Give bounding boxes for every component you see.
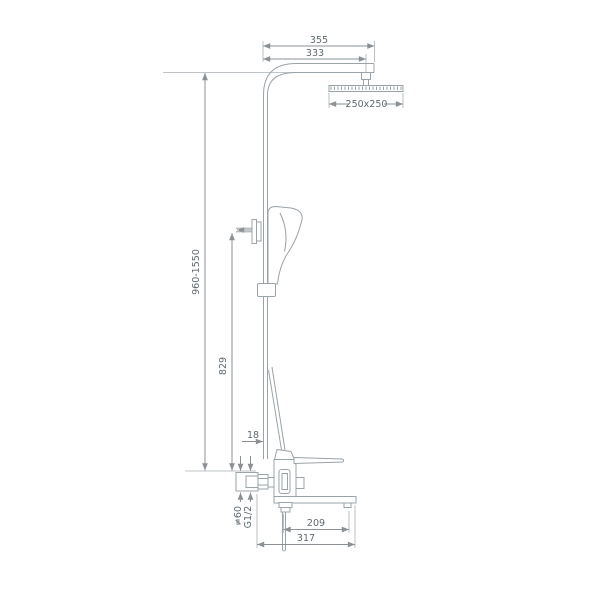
shower-column-technical-drawing: 355 333 250x250 960-1550 829 18 209 317 … bbox=[0, 0, 600, 600]
nozzle-ticks bbox=[331, 87, 401, 91]
dim-label-960-1550: 960-1550 bbox=[191, 249, 202, 295]
diverter-knob bbox=[296, 478, 304, 489]
dim-label-355: 355 bbox=[310, 35, 328, 46]
dim-label-333: 333 bbox=[306, 48, 324, 59]
dim-829: 829 bbox=[218, 233, 232, 471]
dim-label-209: 209 bbox=[307, 518, 325, 529]
slider-block bbox=[258, 284, 276, 297]
dim-thread: G1/2 bbox=[243, 456, 254, 528]
wall-mount-connection bbox=[236, 473, 274, 492]
hand-shower-holder bbox=[236, 220, 261, 244]
hand-shower bbox=[258, 207, 303, 297]
dim-label-18: 18 bbox=[247, 430, 259, 441]
dim-355: 355 bbox=[263, 35, 375, 46]
dim-label-250x250: 250x250 bbox=[346, 99, 388, 110]
dim-960-1550: 960-1550 bbox=[191, 73, 205, 471]
dim-label-829: 829 bbox=[218, 357, 229, 375]
dim-18: 18 bbox=[242, 430, 263, 442]
overhead-shower-head bbox=[329, 73, 403, 92]
dim-250x250: 250x250 bbox=[329, 99, 403, 110]
dim-label-317: 317 bbox=[297, 533, 315, 544]
spout-aerator bbox=[344, 503, 351, 508]
dim-209: 209 bbox=[284, 518, 350, 530]
dim-333: 333 bbox=[263, 48, 366, 59]
hose-nut bbox=[279, 503, 292, 508]
technical-drawing-canvas: 355 333 250x250 960-1550 829 18 209 317 … bbox=[0, 0, 600, 600]
dim-label-g12: G1/2 bbox=[243, 506, 254, 529]
dim-317: 317 bbox=[257, 533, 355, 545]
hand-shower-hose bbox=[269, 367, 286, 450]
lever-handle bbox=[275, 450, 295, 460]
